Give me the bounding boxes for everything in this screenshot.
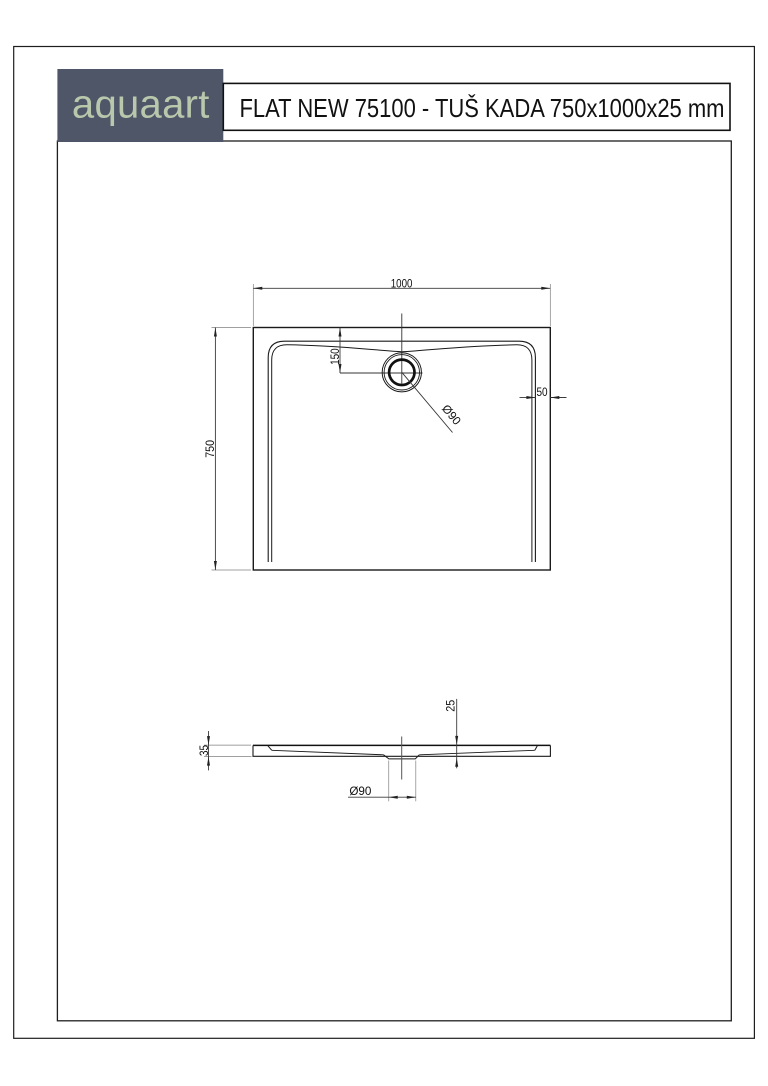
svg-text:Ø90: Ø90 [349,785,372,798]
svg-text:50: 50 [536,386,548,399]
svg-text:aquaart: aquaart [72,82,210,126]
svg-text:FLAT NEW 75100 - TUŠ KADA 750x: FLAT NEW 75100 - TUŠ KADA 750x1000x25 mm [240,94,725,123]
svg-text:35: 35 [198,745,211,756]
svg-text:1000: 1000 [391,276,413,290]
svg-text:750: 750 [204,440,217,458]
svg-text:150: 150 [329,348,342,365]
svg-text:25: 25 [445,699,458,711]
